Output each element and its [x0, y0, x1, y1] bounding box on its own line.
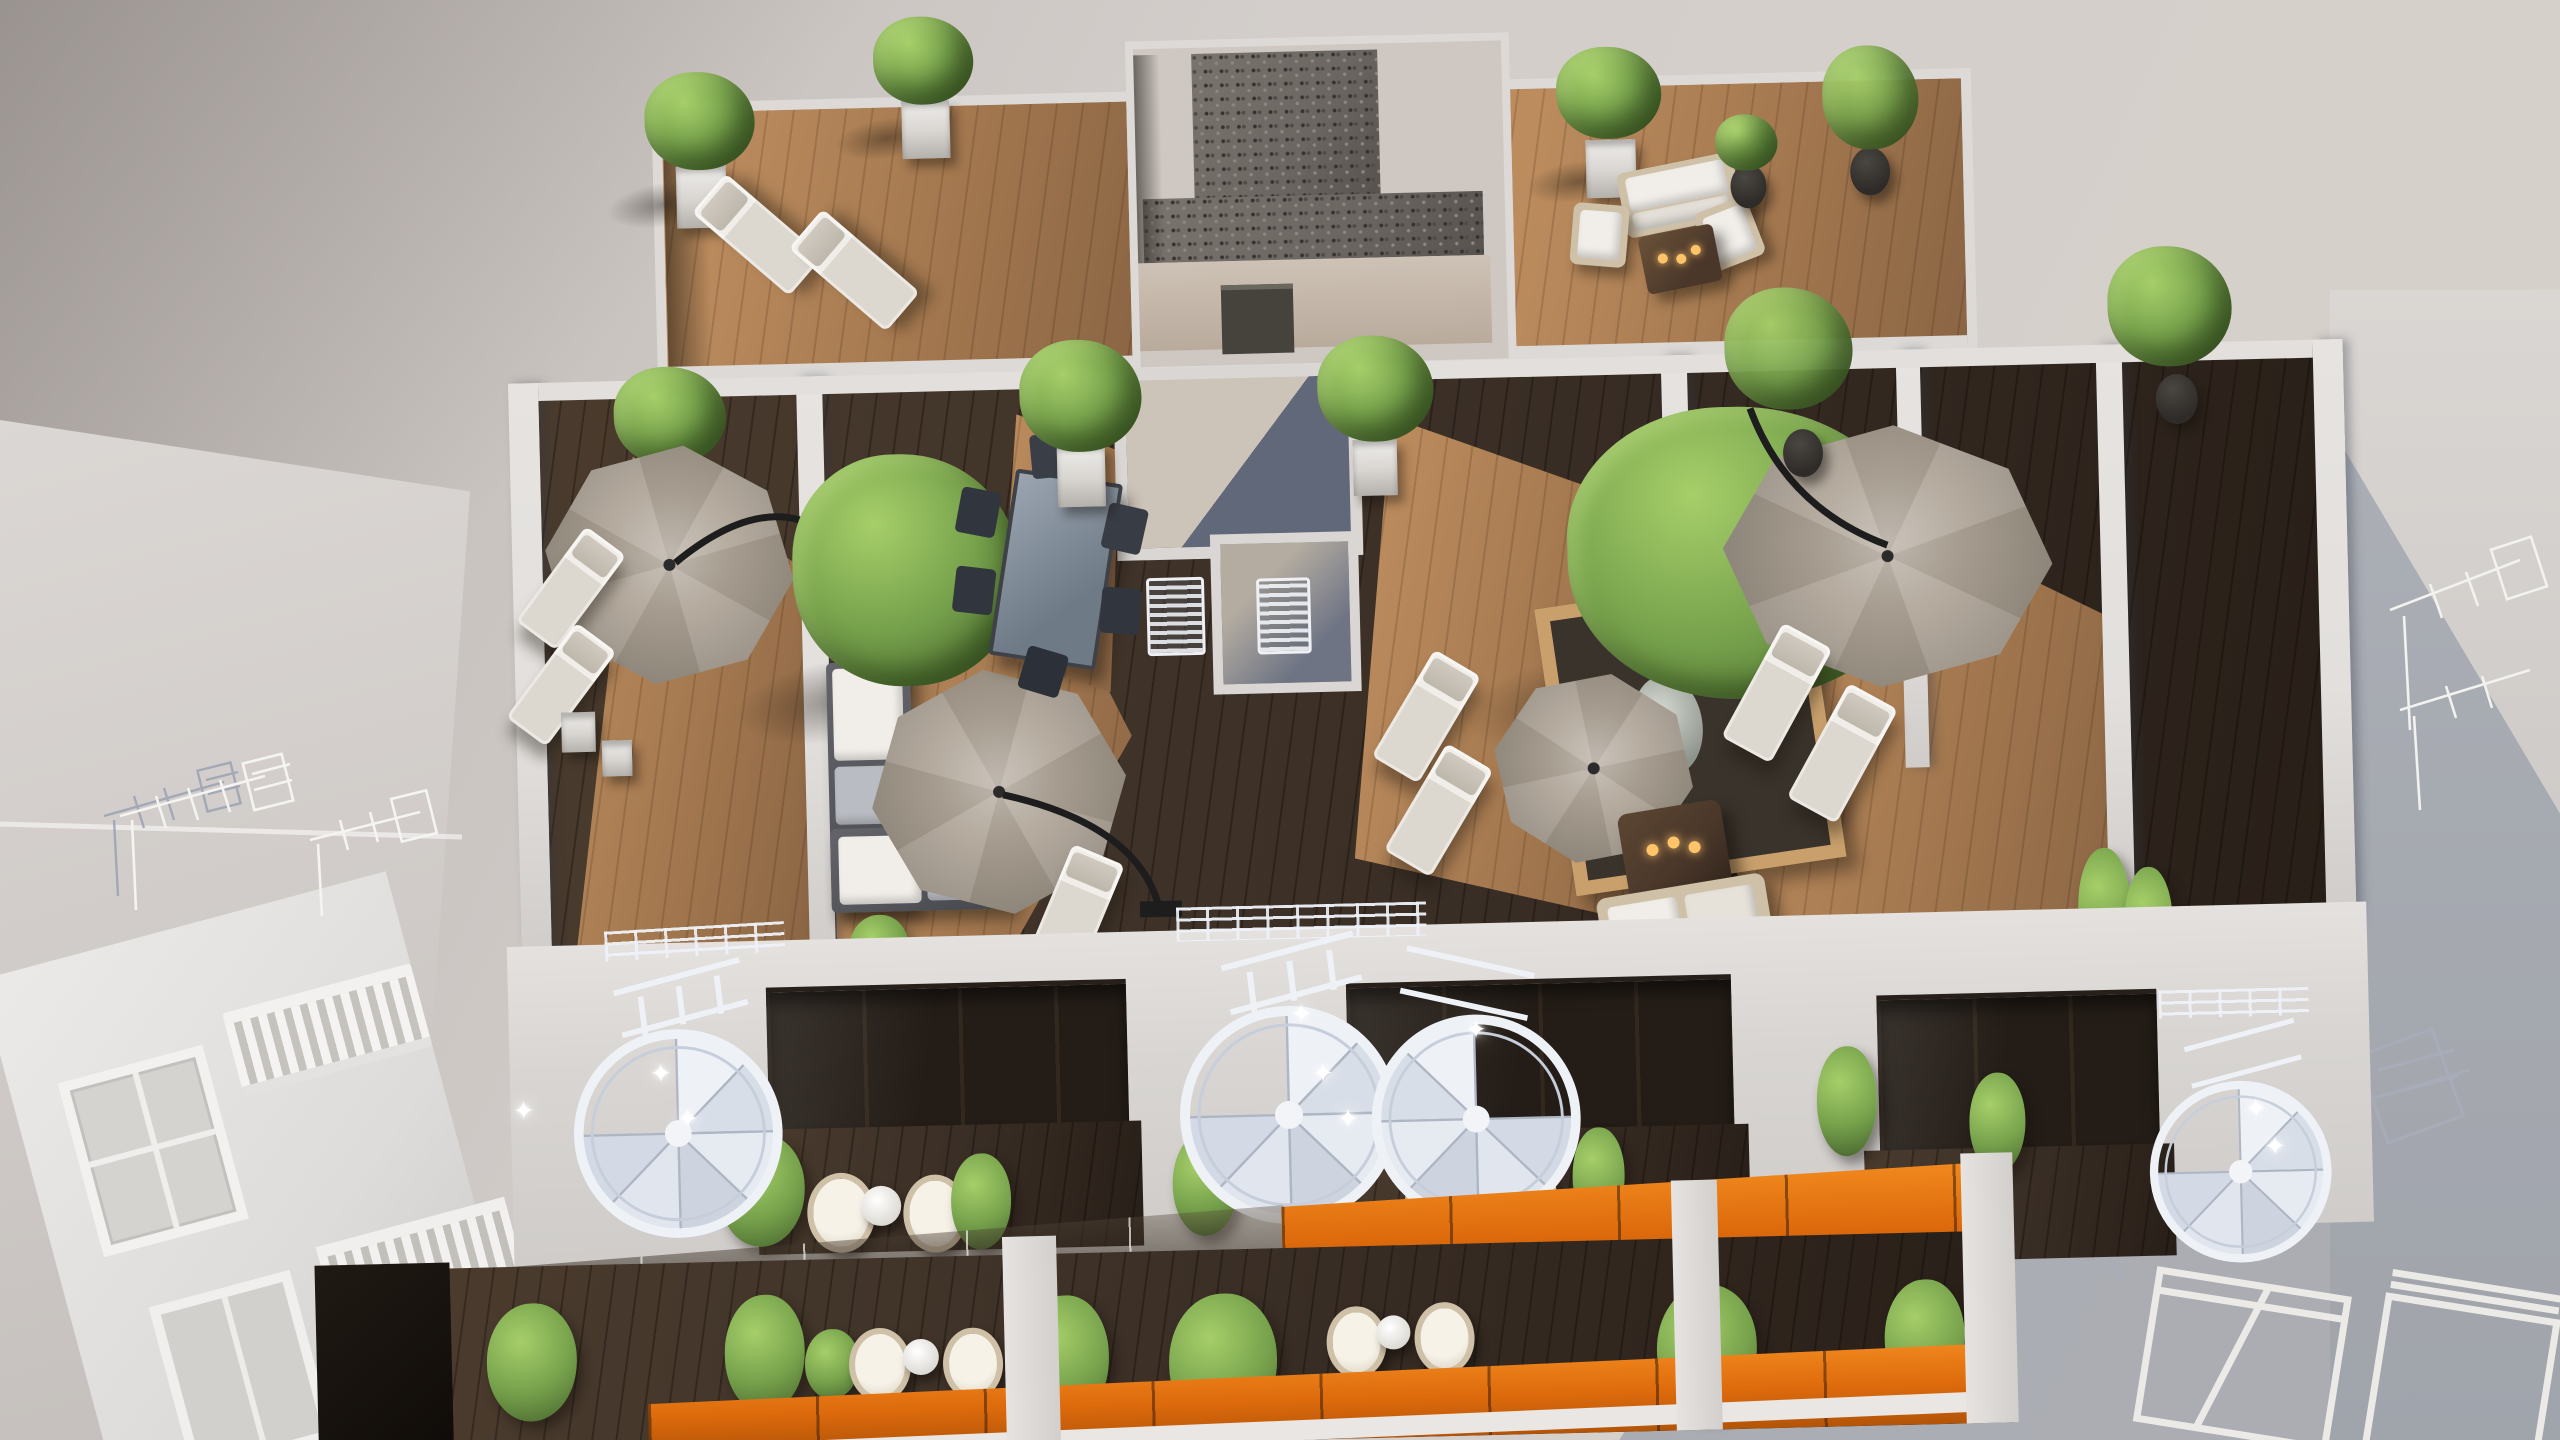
pebble-pot: [602, 740, 633, 777]
balcony-glass-doors: [766, 979, 1129, 1135]
sun-glint: ✦: [1290, 1001, 1312, 1028]
core-front-wall: [1138, 255, 1492, 352]
core-door: [1221, 284, 1295, 355]
spiral-staircase: [2137, 999, 2344, 1294]
gravel-roof-upper: [1191, 49, 1381, 203]
stair-core-block: [1125, 32, 1517, 375]
pebble-pot: [561, 712, 596, 753]
rooftop-render: ✦ ✦ ✦ ✦ ✦ ✦ ✦ ✦ ✦: [0, 0, 2560, 1440]
sun-glint: ✦: [512, 1098, 534, 1125]
folding-chair: [1146, 577, 1206, 656]
potted-tree: [872, 15, 974, 105]
dining-chair: [952, 565, 997, 615]
planter-cube: [901, 100, 950, 159]
balcony-pier: [1671, 1179, 1723, 1430]
sun-glint: ✦: [677, 1106, 699, 1133]
gravel-roof-lower: [1143, 191, 1484, 263]
leaning-tree: [1821, 44, 1920, 150]
balcony-pier: [1002, 1236, 1061, 1440]
sun-glint: ✦: [1337, 1106, 1359, 1133]
folding-chair: [1256, 577, 1312, 654]
sun-glint: ✦: [1465, 1017, 1487, 1044]
planter-cube: [1057, 444, 1107, 507]
main-building: ✦ ✦ ✦ ✦ ✦ ✦ ✦ ✦ ✦: [0, 0, 2560, 1440]
umbrella-arm: [1703, 374, 1928, 579]
sun-glint: ✦: [2264, 1134, 2286, 1161]
wicker-armchair: [1569, 202, 1630, 268]
sun-glint: ✦: [2245, 1096, 2267, 1123]
planter-cube: [1353, 439, 1398, 496]
lower-left-glazing: [314, 1262, 454, 1440]
balcony-pier: [1960, 1152, 2019, 1423]
sun-glint: ✦: [650, 1061, 672, 1088]
dining-chair: [1099, 586, 1143, 635]
sun-glint: ✦: [1312, 1061, 1334, 1088]
potted-tree: [2106, 245, 2233, 368]
dining-chair: [954, 486, 1002, 539]
